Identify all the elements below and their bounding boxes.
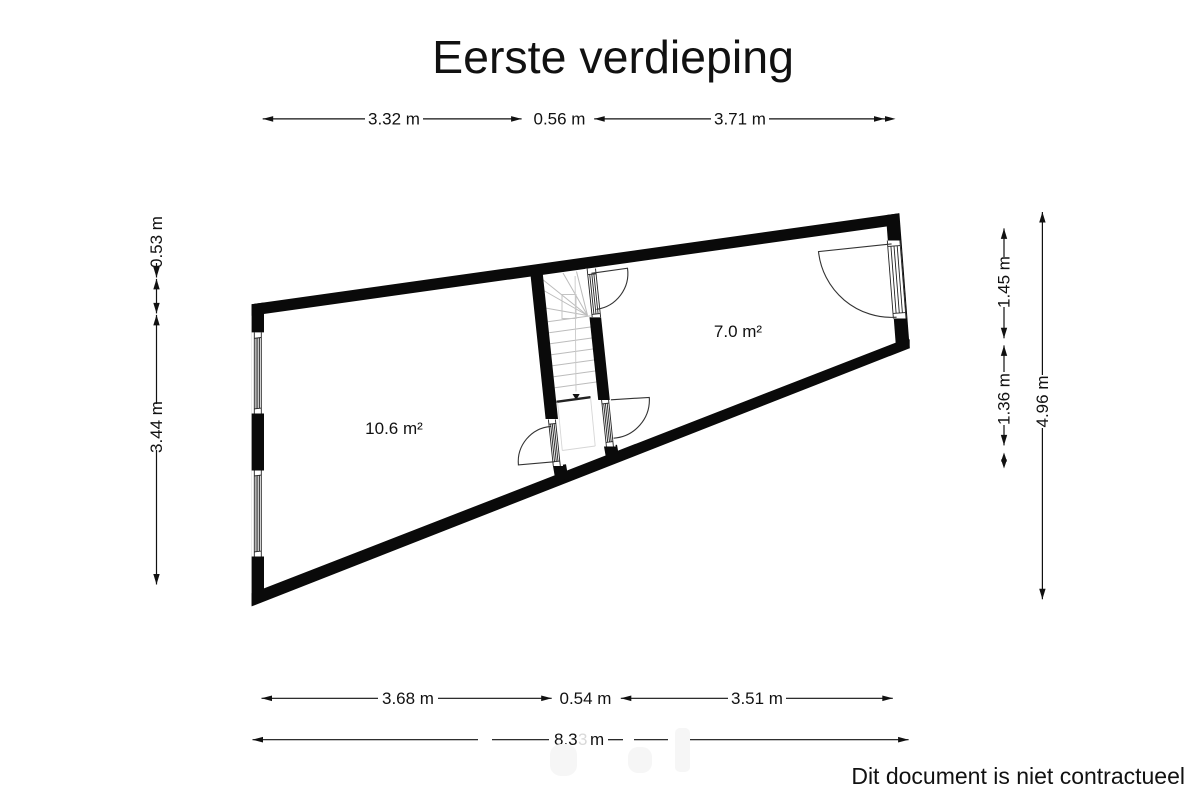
svg-text:m: m	[590, 730, 604, 749]
svg-text:7.0 m²: 7.0 m²	[714, 322, 763, 341]
svg-text:Dit document is niet contractu: Dit document is niet contractueel	[851, 763, 1185, 789]
svg-text:3: 3	[578, 730, 587, 749]
svg-text:4.96 m: 4.96 m	[1033, 376, 1052, 428]
svg-text:Eerste verdieping: Eerste verdieping	[432, 31, 794, 83]
svg-text:1.45 m: 1.45 m	[995, 256, 1014, 308]
svg-text:10.6 m²: 10.6 m²	[365, 419, 423, 438]
svg-text:0.53 m: 0.53 m	[147, 216, 166, 268]
svg-text:3.51 m: 3.51 m	[731, 689, 783, 708]
svg-text:3.44 m: 3.44 m	[147, 401, 166, 453]
svg-text:3.71 m: 3.71 m	[714, 109, 766, 128]
svg-text:0.54 m: 0.54 m	[560, 689, 612, 708]
svg-text:3.32 m: 3.32 m	[368, 109, 420, 128]
svg-text:1.36 m: 1.36 m	[995, 373, 1014, 425]
svg-text:3.68 m: 3.68 m	[382, 689, 434, 708]
svg-text:0.56 m: 0.56 m	[534, 109, 586, 128]
